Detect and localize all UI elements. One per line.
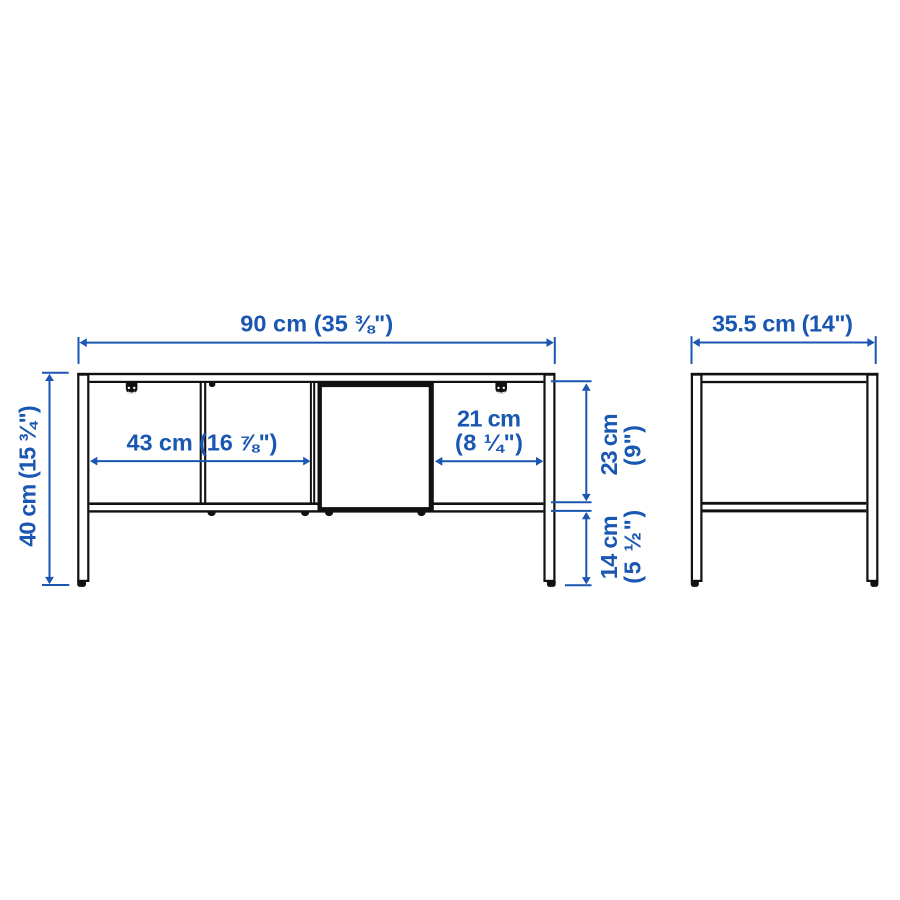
svg-text:(9"): (9")	[620, 425, 646, 466]
svg-text:43 cm (16 ⅞"): 43 cm (16 ⅞")	[127, 430, 278, 456]
svg-text:40 cm (15 ¾"): 40 cm (15 ¾")	[15, 405, 41, 547]
svg-text:14 cm: 14 cm	[596, 515, 622, 579]
svg-text:(8 ¼"): (8 ¼")	[455, 429, 523, 455]
svg-text:90 cm (35 ⅜"): 90 cm (35 ⅜")	[240, 311, 393, 337]
svg-text:23 cm: 23 cm	[596, 413, 622, 475]
svg-text:21 cm: 21 cm	[457, 406, 521, 432]
svg-text:(5 ½"): (5 ½")	[620, 510, 646, 584]
svg-text:35.5 cm (14"): 35.5 cm (14")	[712, 311, 853, 337]
